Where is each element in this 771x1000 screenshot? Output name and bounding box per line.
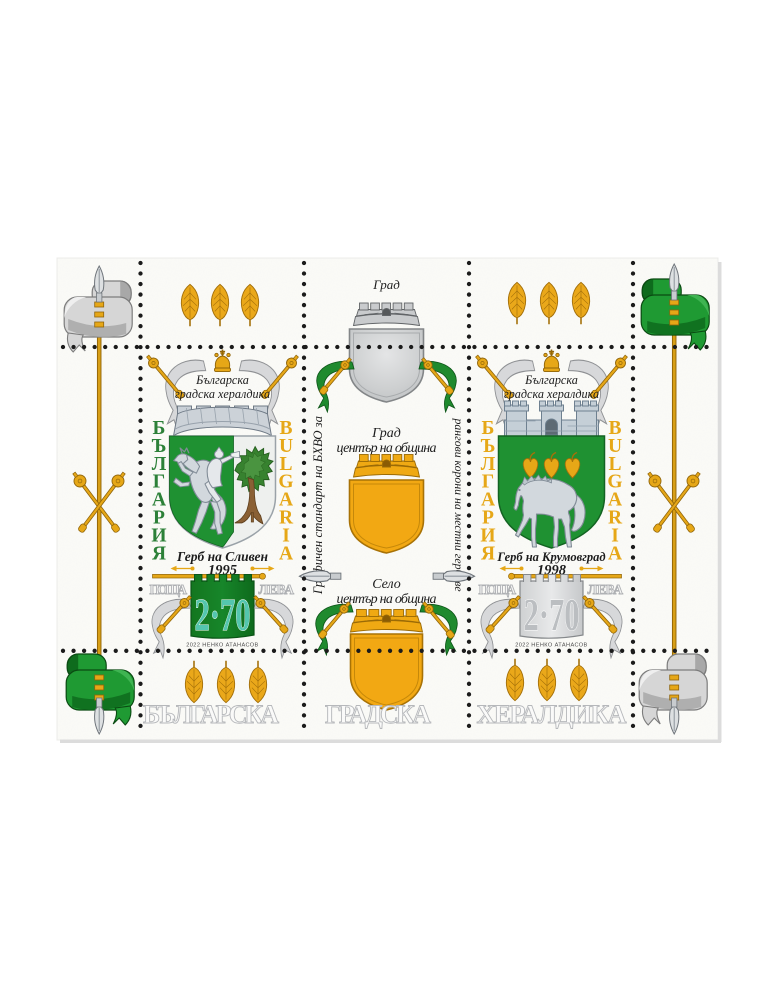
svg-text:2·70: 2·70 [195,589,251,640]
svg-text:2022 НЕНКО АТАНАСОВ: 2022 НЕНКО АТАНАСОВ [186,643,258,649]
svg-text:Село: Село [372,577,401,592]
svg-text:ХЕРАЛДИКА: ХЕРАЛДИКА [477,700,627,729]
svg-text:БЪЛГАРСКА: БЪЛГАРСКА [143,700,279,729]
svg-text:Българска: Българска [524,373,578,387]
svg-text:Българска: Българска [195,373,249,387]
svg-text:Я: Я [152,543,166,564]
svg-text:рангови корони на местни гербо: рангови корони на местни гербове [452,417,466,591]
svg-text:A: A [279,543,293,564]
svg-text:Я: Я [481,543,495,564]
svg-text:Графичен стандарт на БХВО за: Графичен стандарт на БХВО за [311,416,325,595]
svg-text:ПОЩА: ПОЩА [150,582,189,597]
svg-text:2022 НЕНКО АТАНАСОВ: 2022 НЕНКО АТАНАСОВ [515,643,587,649]
svg-text:градска хералдика: градска хералдика [504,387,599,401]
svg-text:Град: Град [372,277,400,292]
svg-text:градска хералдика: градска хералдика [175,387,270,401]
svg-text:Град: Град [371,426,401,441]
svg-text:ГРАДСКА: ГРАДСКА [325,700,431,729]
svg-text:ПОЩА: ПОЩА [479,582,518,597]
svg-text:2·70: 2·70 [524,589,580,640]
svg-text:A: A [608,543,622,564]
svg-text:център на община: център на община [337,592,437,607]
svg-text:център на община: център на община [337,441,437,456]
svg-text:ЛЕВА: ЛЕВА [259,582,296,597]
svg-text:ЛЕВА: ЛЕВА [588,582,625,597]
